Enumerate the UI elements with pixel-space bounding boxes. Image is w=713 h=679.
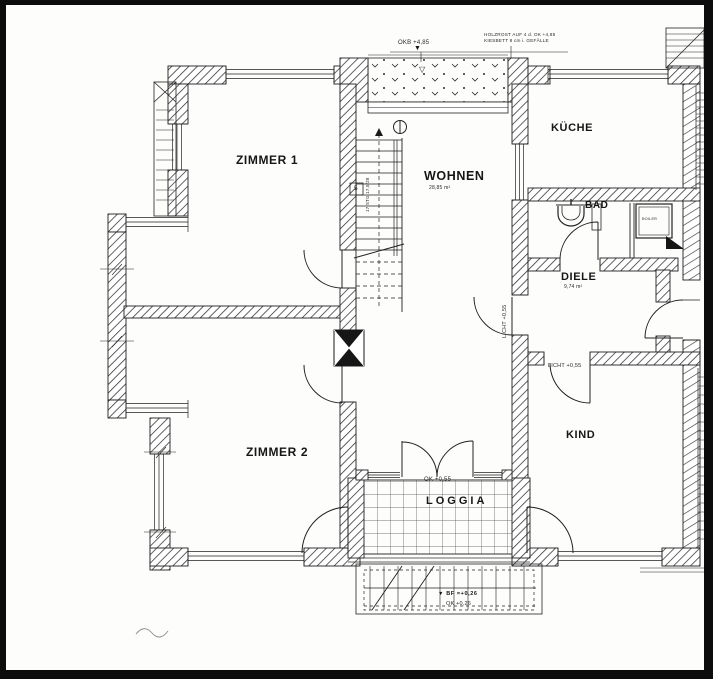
level-marker-icon: ▼ bbox=[414, 45, 421, 52]
room-label-kind: KIND bbox=[566, 430, 595, 441]
loggia-level-note: OK +0,55 bbox=[424, 477, 451, 483]
room-label-kueche: KÜCHE bbox=[551, 123, 593, 134]
entry-level-ok: OK +0,26 bbox=[446, 602, 471, 608]
room-label-loggia: LOGGIA bbox=[426, 496, 487, 507]
room-label-zimmer2: ZIMMER 2 bbox=[246, 446, 308, 458]
level-marker-icon: ▼ bbox=[438, 591, 444, 597]
room-label-wohnen: WOHNEN bbox=[424, 170, 485, 183]
entry-level-bf: ▼ BF =+0,26 bbox=[438, 592, 478, 598]
roof-note-line2: KIESBETT 8 cm i. GEFÄLLE bbox=[484, 39, 549, 44]
room-label-zimmer1: ZIMMER 1 bbox=[236, 154, 298, 166]
loggia-floor bbox=[348, 480, 530, 562]
boiler-label: BOILER bbox=[642, 218, 657, 222]
stair-mark: 5 bbox=[354, 186, 358, 193]
room-label-diele: DIELE bbox=[561, 272, 596, 283]
room-area-diele: 9,74 m² bbox=[564, 285, 582, 290]
level-marker-open-icon: ▽ bbox=[419, 66, 425, 74]
floorplan-drawing bbox=[0, 0, 713, 679]
roof-terrace bbox=[368, 55, 508, 113]
chimney bbox=[334, 330, 364, 366]
roof-note-line1: HOLZROST AUF 4 d. OK +4,85 bbox=[484, 33, 555, 38]
room-area-wohnen: 28,85 m² bbox=[429, 186, 450, 191]
room-label-bad: BAD bbox=[585, 201, 608, 211]
scanned-floorplan-page: ZIMMER 1 ZIMMER 2 WOHNEN 28,85 m² KÜCHE … bbox=[0, 0, 713, 679]
sill-note-west: LICHT +0,55 bbox=[503, 305, 509, 338]
sill-note-south: LICHT +0,55 bbox=[548, 364, 581, 370]
stair-note: 17 STG 17,5/28 bbox=[366, 177, 371, 212]
